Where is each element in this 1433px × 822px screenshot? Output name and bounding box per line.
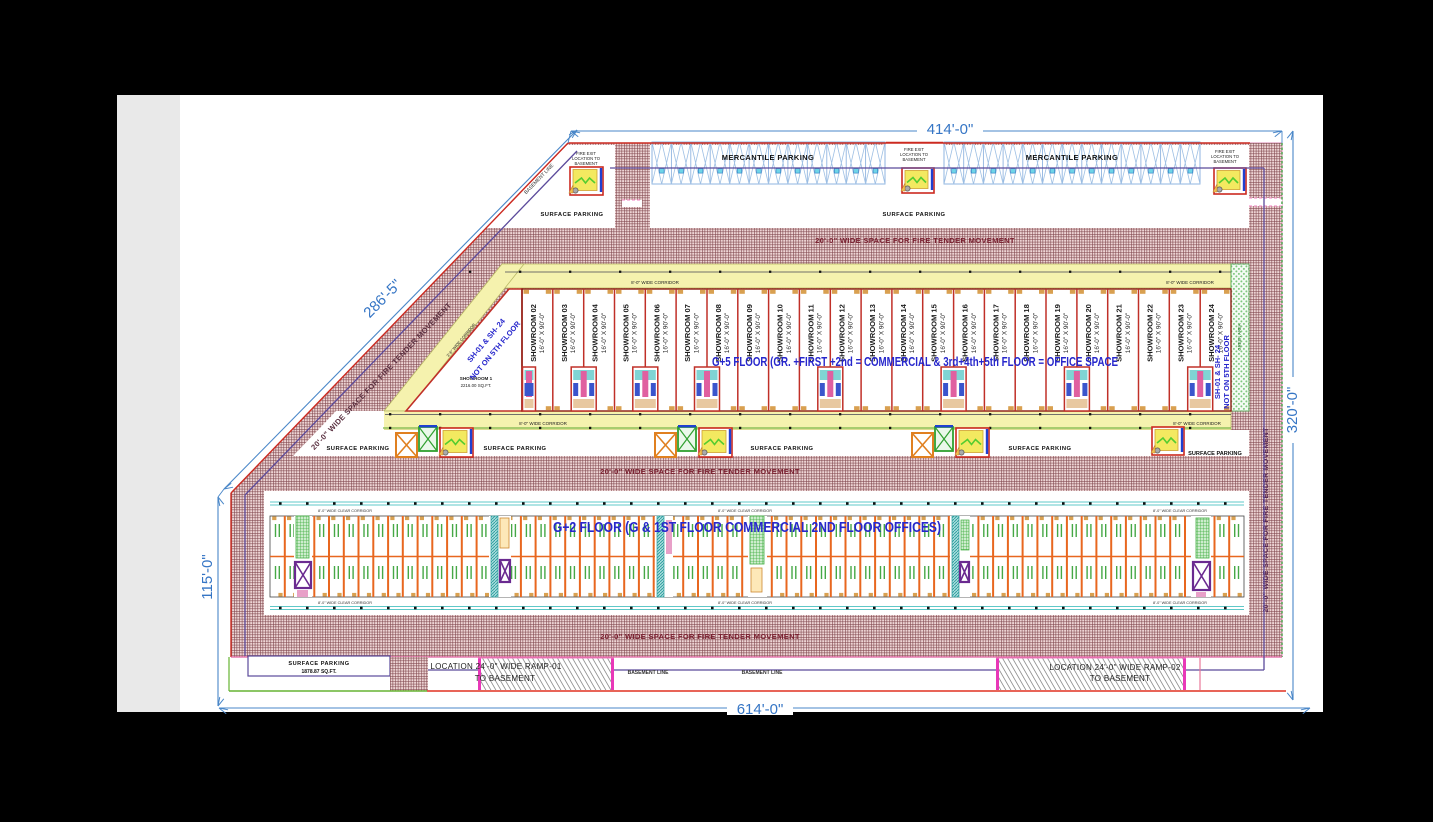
svg-text:16'-0" X 90'-0": 16'-0" X 90'-0" [1094,313,1101,353]
svg-text:SHOWROOM 07: SHOWROOM 07 [683,304,692,362]
svg-text:16'-0" X 90'-0": 16'-0" X 90'-0" [693,313,700,353]
svg-text:BASEMENT LINE: BASEMENT LINE [742,670,784,676]
svg-text:16'-0" X 90'-0": 16'-0" X 90'-0" [1156,313,1163,353]
svg-text:SHOWROOM 06: SHOWROOM 06 [652,304,661,362]
svg-text:1878.87 SQ.FT.: 1878.87 SQ.FT. [301,669,337,675]
svg-text:16'-0" X 90'-0": 16'-0" X 90'-0" [632,313,639,353]
svg-text:614'-0": 614'-0" [737,701,784,718]
svg-text:16'-0" X 90'-0": 16'-0" X 90'-0" [1125,313,1132,353]
svg-text:BASEMENT: BASEMENT [574,161,597,166]
svg-text:SURFACE PARKING: SURFACE PARKING [750,446,813,452]
svg-text:115'-0": 115'-0" [199,554,216,599]
svg-text:SHOWROOM 11: SHOWROOM 11 [806,304,815,362]
svg-text:20'-0" WIDE SPACE FOR FIRE TEN: 20'-0" WIDE SPACE FOR FIRE TENDER MOVEME… [815,236,1015,245]
svg-text:SHOWROOM 04: SHOWROOM 04 [591,303,600,362]
svg-text:16'-0" X 90'-0": 16'-0" X 90'-0" [940,313,947,353]
svg-text:MERCANTILE PARKING: MERCANTILE PARKING [722,153,814,162]
svg-text:20'-0" WIDE SPACE FOR FIRE TEN: 20'-0" WIDE SPACE FOR FIRE TENDER MOVEME… [600,632,800,641]
svg-text:G+2 FLOOR (G & 1ST FLOOR COMM: G+2 FLOOR (G & 1ST FLOOR COMMERCIAL 2ND … [553,520,941,536]
svg-text:BASEMENT LINE: BASEMENT LINE [628,670,670,676]
svg-text:16'-0" X 90'-0": 16'-0" X 90'-0" [1032,313,1039,353]
svg-text:16'-0" X 90'-0": 16'-0" X 90'-0" [878,313,885,353]
svg-text:16'-0" X 90'-0": 16'-0" X 90'-0" [662,313,669,353]
svg-text:SURFACE PARKING: SURFACE PARKING [540,212,603,218]
svg-text:NOT ON 5TH FLOOR: NOT ON 5TH FLOOR [1222,335,1231,409]
svg-text:16'-0" X 90'-0": 16'-0" X 90'-0" [570,313,577,353]
svg-text:16'-0" X 90'-0": 16'-0" X 90'-0" [724,313,731,353]
svg-text:8'-0" WIDE CORRIDOR: 8'-0" WIDE CORRIDOR [519,421,567,426]
svg-text:20'-0" WIDE SPACE FOR FIRE TEN: 20'-0" WIDE SPACE FOR FIRE TENDER MOVEME… [600,467,800,476]
svg-text:8'-0" WIDE CORRIDOR: 8'-0" WIDE CORRIDOR [631,280,679,285]
svg-text:16'-0" X 90'-0": 16'-0" X 90'-0" [786,313,793,353]
svg-text:SURFACE PARKING: SURFACE PARKING [882,212,945,218]
svg-text:LOCATION 24'-0" WIDE RAMP-02: LOCATION 24'-0" WIDE RAMP-02 [1049,663,1181,672]
svg-text:414'-0": 414'-0" [927,121,974,138]
svg-text:TO BASEMENT: TO BASEMENT [475,674,536,683]
svg-text:SHOWROOM 22: SHOWROOM 22 [1146,304,1155,362]
svg-text:MERCANTILE PARKING: MERCANTILE PARKING [1026,153,1118,162]
svg-text:8'-0" WIDE CORRIDOR: 8'-0" WIDE CORRIDOR [1173,421,1221,426]
svg-text:8'-0" WIDE CLEAR CORRIDOR: 8'-0" WIDE CLEAR CORRIDOR [718,509,772,513]
svg-text:SHOWROOM 02: SHOWROOM 02 [529,304,538,362]
svg-text:16'-0" X 90'-0": 16'-0" X 90'-0" [909,313,916,353]
svg-text:8'-0" WIDE CLEAR CORRIDOR: 8'-0" WIDE CLEAR CORRIDOR [1153,601,1207,605]
svg-text:SHOWROOM 23: SHOWROOM 23 [1176,304,1185,362]
svg-text:SH-01 & SH- 24: SH-01 & SH- 24 [1213,344,1222,399]
svg-text:16'-0" X 90'-0": 16'-0" X 90'-0" [971,313,978,353]
svg-text:16'-0" X 90'-0": 16'-0" X 90'-0" [1002,313,1009,353]
svg-text:8'-0" WIDE CORRIDOR: 8'-0" WIDE CORRIDOR [1166,280,1214,285]
svg-text:BASEMENT: BASEMENT [1213,159,1236,164]
svg-text:SHOWROOM 05: SHOWROOM 05 [622,303,631,362]
svg-text:8'-0" WIDE CLEAR CORRIDOR: 8'-0" WIDE CLEAR CORRIDOR [318,509,372,513]
svg-text:TO BASEMENT: TO BASEMENT [1090,674,1151,683]
svg-text:SURFACE PARKING: SURFACE PARKING [326,446,389,452]
svg-text:SURFACE PARKING: SURFACE PARKING [1008,446,1071,452]
svg-text:SURFACE PARKING: SURFACE PARKING [288,661,349,667]
svg-text:8'-0" WIDE CLEAR CORRIDOR: 8'-0" WIDE CLEAR CORRIDOR [1153,509,1207,513]
svg-text:16'-0" X 90'-0": 16'-0" X 90'-0" [601,313,608,353]
svg-text:SURFACE PARKING: SURFACE PARKING [483,446,546,452]
svg-text:8'-0" WIDE CLEAR CORRIDOR: 8'-0" WIDE CLEAR CORRIDOR [718,601,772,605]
svg-text:2216.00 SQ.FT.: 2216.00 SQ.FT. [461,383,492,388]
svg-text:G+5 FLOOR (GR. +FIRST +2nd =: G+5 FLOOR (GR. +FIRST +2nd = COMMERCIAL … [712,354,1118,369]
svg-text:SHOWROOM 03: SHOWROOM 03 [560,304,569,362]
svg-text:16'-0" X 90'-0": 16'-0" X 90'-0" [1186,313,1193,353]
svg-text:BASEMENT: BASEMENT [902,157,925,162]
svg-text:16'-0" X 90'-0": 16'-0" X 90'-0" [817,313,824,353]
svg-text:8'-0" WIDE CLEAR CORRIDOR: 8'-0" WIDE CLEAR CORRIDOR [318,601,372,605]
svg-text:16'-0" X 90'-0": 16'-0" X 90'-0" [755,313,762,353]
svg-text:16'-0" X 90'-0": 16'-0" X 90'-0" [847,313,854,353]
svg-text:LOCATION 24'-0" WIDE RAMP-01: LOCATION 24'-0" WIDE RAMP-01 [430,662,562,671]
svg-text:320'-0": 320'-0" [1284,387,1301,434]
svg-text:SURFACE PARKING: SURFACE PARKING [1188,451,1242,457]
svg-text:GREEN AREA: GREEN AREA [1237,323,1242,350]
svg-text:16'-0" X 90'-0": 16'-0" X 90'-0" [539,313,546,353]
svg-text:16'-0" X 90'-0": 16'-0" X 90'-0" [1063,313,1070,353]
